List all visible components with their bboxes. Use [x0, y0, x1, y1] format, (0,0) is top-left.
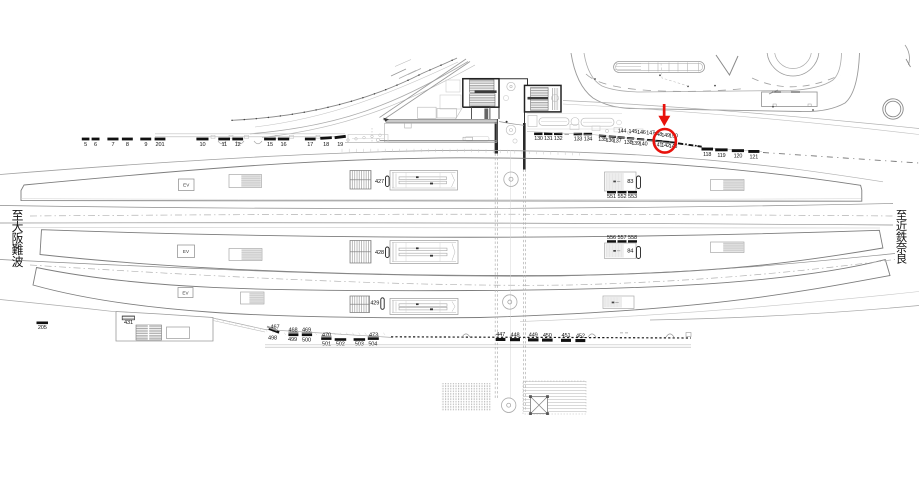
svg-text:10: 10	[200, 142, 206, 148]
svg-text:131: 131	[544, 136, 553, 142]
svg-text:121: 121	[750, 154, 759, 160]
svg-text:EV: EV	[183, 249, 190, 254]
svg-text:15: 15	[267, 142, 273, 148]
svg-text:83: 83	[627, 179, 633, 185]
svg-text:5: 5	[84, 142, 87, 148]
svg-text:133: 133	[574, 136, 583, 142]
svg-text:奈: 奈	[896, 241, 907, 255]
svg-text:134: 134	[584, 136, 593, 142]
svg-text:6: 6	[94, 142, 97, 148]
svg-text:452: 452	[576, 333, 585, 339]
svg-text:120: 120	[734, 154, 743, 160]
svg-text:130: 130	[534, 136, 543, 142]
svg-text:19: 19	[337, 142, 343, 148]
svg-text:119: 119	[717, 153, 725, 159]
svg-text:551: 551	[607, 194, 616, 200]
svg-text:EV: EV	[182, 290, 189, 295]
svg-text:502: 502	[336, 341, 345, 347]
svg-text:118: 118	[703, 152, 711, 158]
svg-text:500: 500	[302, 338, 311, 344]
svg-text:450: 450	[543, 333, 552, 339]
svg-text:552: 552	[618, 194, 627, 200]
svg-text:7: 7	[112, 142, 115, 148]
svg-text:501: 501	[322, 341, 331, 347]
svg-text:9: 9	[144, 142, 147, 148]
svg-text:145: 145	[629, 129, 638, 135]
svg-text:447: 447	[496, 332, 505, 338]
svg-text:448: 448	[511, 332, 520, 338]
svg-text:波: 波	[12, 255, 24, 269]
svg-text:良: 良	[896, 252, 907, 266]
svg-text:431: 431	[124, 320, 133, 326]
svg-text:201: 201	[156, 142, 165, 148]
svg-text:503: 503	[355, 341, 364, 347]
svg-text:504: 504	[368, 341, 377, 347]
svg-text:449: 449	[529, 333, 538, 339]
svg-text:140: 140	[639, 142, 648, 148]
svg-text:146: 146	[637, 130, 646, 136]
svg-text:428: 428	[375, 250, 384, 256]
svg-text:144: 144	[618, 129, 627, 135]
svg-text:427: 427	[375, 179, 384, 185]
svg-text:137: 137	[613, 139, 622, 145]
svg-text:132: 132	[554, 136, 563, 142]
svg-text:8: 8	[126, 142, 129, 148]
svg-text:429: 429	[370, 301, 379, 307]
svg-text:499: 499	[288, 337, 297, 343]
svg-text:553: 553	[628, 194, 637, 200]
svg-text:16: 16	[281, 142, 287, 148]
svg-text:205: 205	[38, 325, 47, 331]
svg-text:EV: EV	[183, 183, 190, 188]
svg-text:12: 12	[235, 142, 241, 148]
svg-text:11: 11	[221, 142, 227, 148]
svg-text:498: 498	[268, 335, 277, 341]
svg-text:451: 451	[562, 333, 571, 339]
svg-text:84: 84	[627, 249, 634, 255]
svg-text:17: 17	[307, 142, 313, 148]
svg-text:18: 18	[323, 142, 329, 148]
